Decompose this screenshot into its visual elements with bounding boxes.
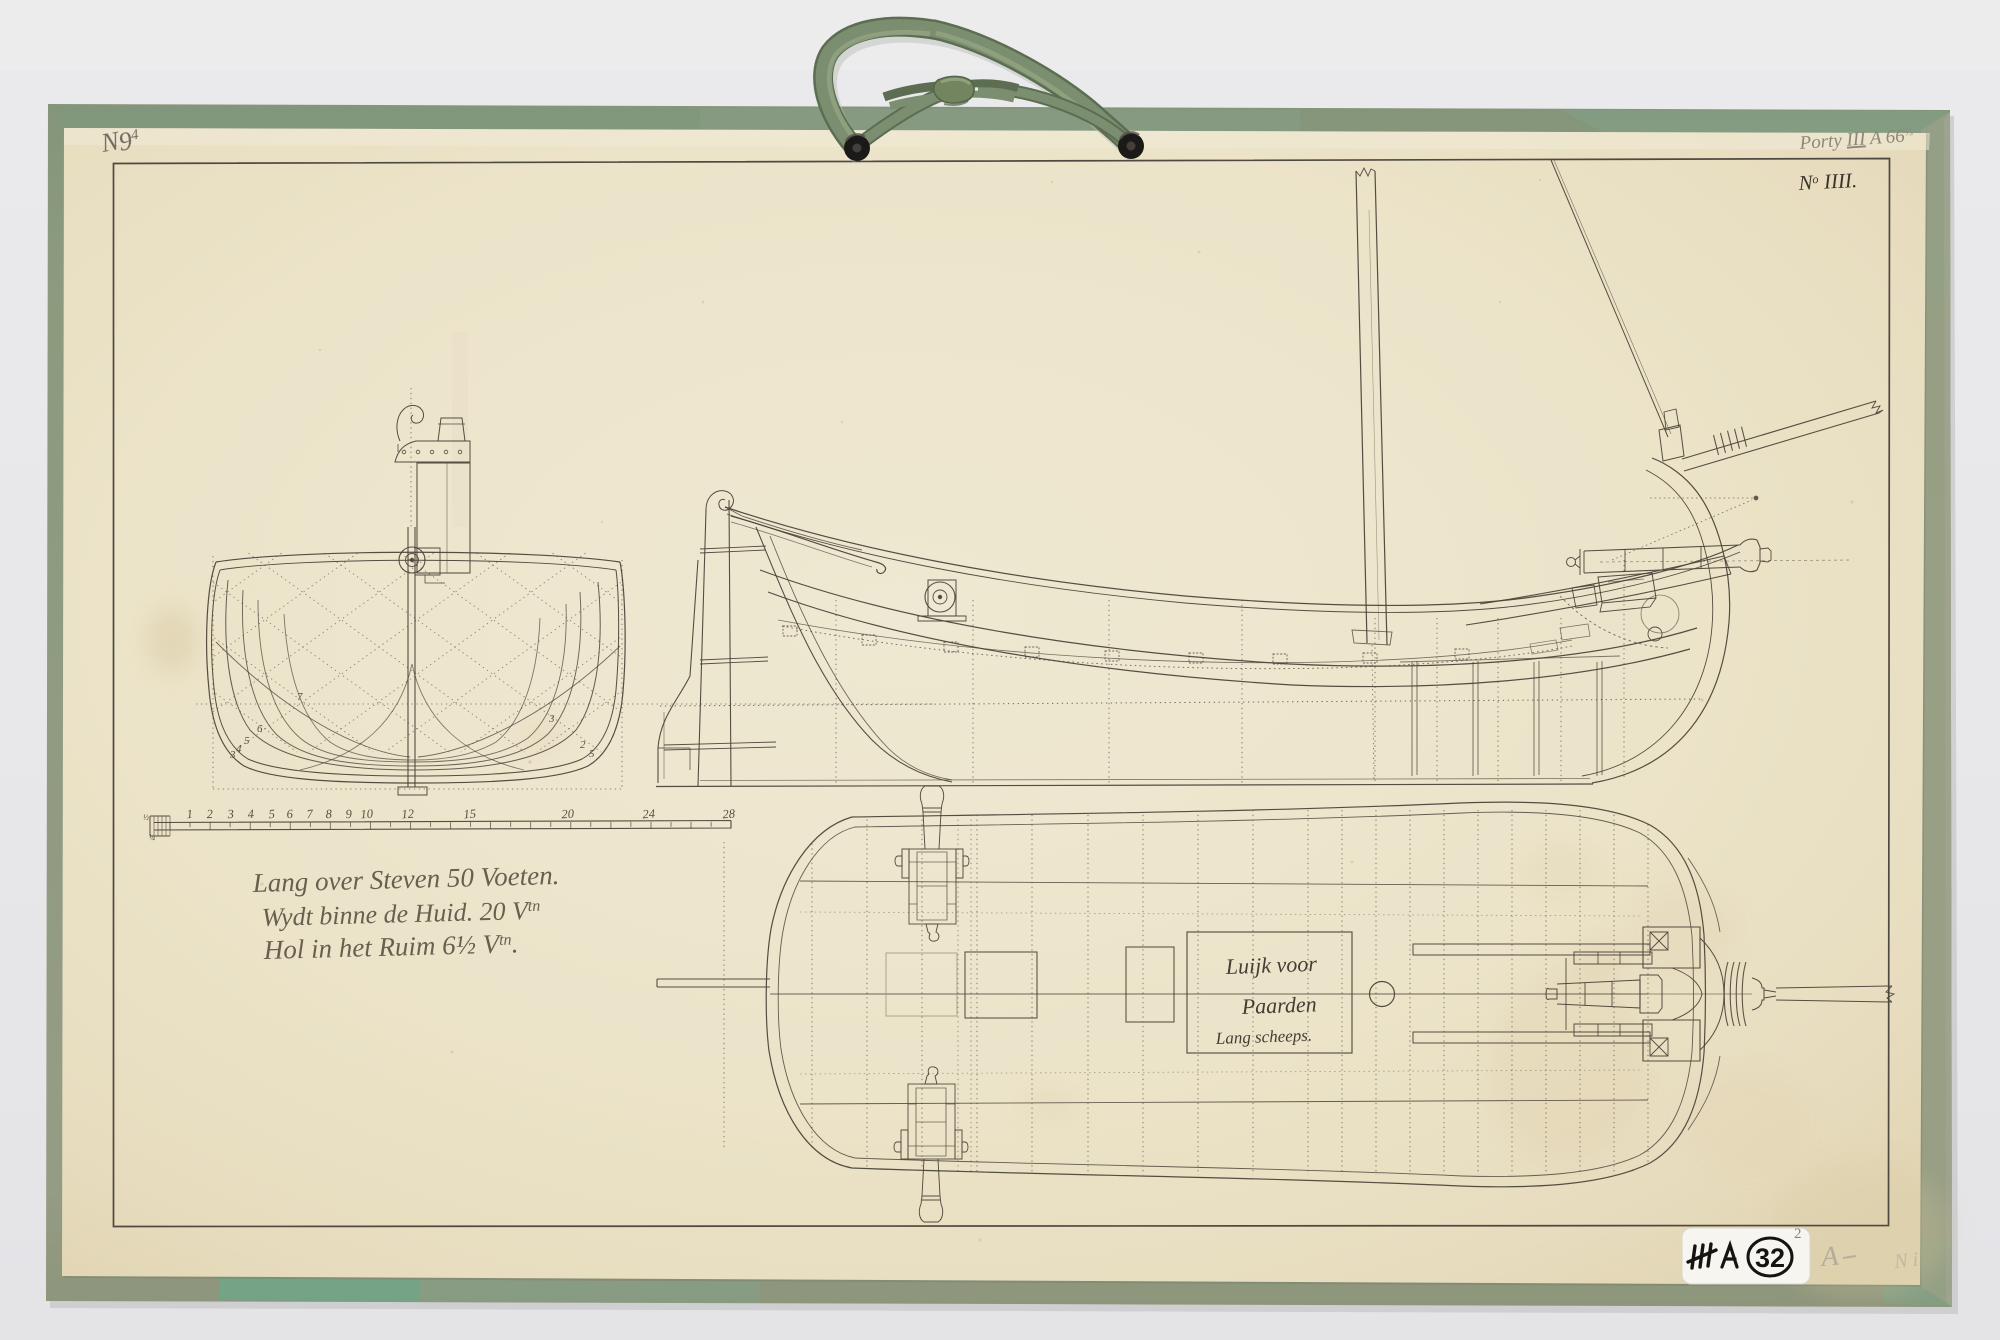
svg-text:¼: ¼: [149, 833, 155, 842]
svg-text:20: 20: [561, 807, 575, 822]
svg-text:3: 3: [548, 713, 555, 725]
svg-text:2: 2: [580, 739, 586, 751]
svg-text:4: 4: [247, 807, 254, 821]
svg-text:4: 4: [236, 743, 242, 755]
svg-text:N i: N i: [1892, 1249, 1919, 1273]
svg-text:1: 1: [186, 807, 193, 821]
svg-text:A: A: [1818, 1241, 1841, 1274]
svg-text:No IIII.: No IIII.: [1797, 168, 1858, 195]
svg-text:5: 5: [244, 735, 250, 747]
svg-text:Lang scheeps.: Lang scheeps.: [1214, 1026, 1312, 1048]
svg-text:Luijk voor: Luijk voor: [1224, 951, 1317, 979]
svg-text:6: 6: [257, 723, 263, 735]
svg-text:Paarden: Paarden: [1240, 991, 1317, 1019]
svg-text:32: 32: [1755, 1243, 1785, 1273]
svg-text:3: 3: [229, 749, 236, 761]
svg-text:28: 28: [722, 807, 736, 822]
svg-text:12: 12: [401, 807, 414, 822]
svg-text:5: 5: [268, 807, 275, 821]
svg-text:3: 3: [226, 807, 234, 821]
svg-text:24: 24: [642, 807, 655, 822]
svg-text:5: 5: [589, 748, 595, 760]
svg-text:7: 7: [297, 691, 303, 703]
svg-text:15: 15: [463, 807, 476, 822]
svg-text:2: 2: [1794, 1226, 1802, 1242]
svg-text:½: ½: [143, 813, 149, 822]
svg-text:10: 10: [360, 807, 374, 822]
svg-text:2: 2: [206, 807, 213, 821]
